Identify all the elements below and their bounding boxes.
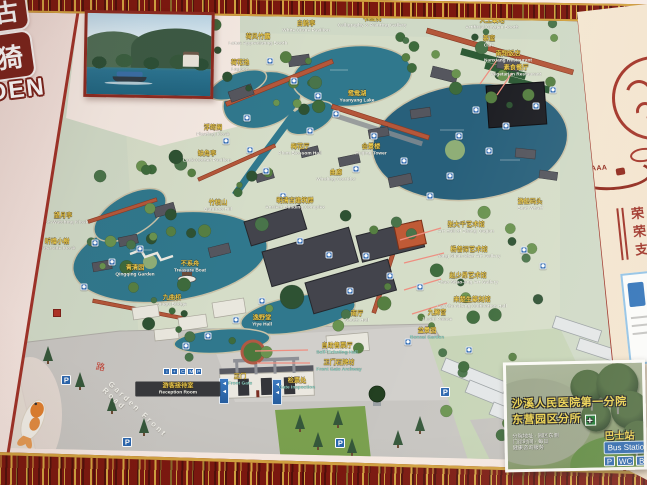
tree: [377, 296, 391, 310]
tree: [128, 282, 138, 292]
restaurant-building: [486, 82, 547, 128]
tree: [288, 78, 298, 88]
tree: [460, 292, 471, 303]
tree: [293, 99, 302, 108]
tree: [402, 53, 410, 61]
tree: [369, 226, 378, 235]
vertical-char: 支: [634, 238, 647, 258]
tree: [471, 34, 478, 41]
tree: [126, 240, 135, 249]
logo-seal-top: 古: [0, 0, 29, 33]
tree: [188, 169, 196, 177]
photo-pavilion: [183, 55, 199, 67]
tree: [527, 243, 538, 254]
tree: [305, 58, 312, 65]
tree: [169, 150, 183, 164]
tree: [483, 29, 489, 35]
notice-box: [620, 270, 647, 365]
tree: [145, 203, 156, 214]
tree: [255, 217, 269, 231]
tree: [94, 170, 106, 182]
tree: [246, 85, 252, 91]
tree: [99, 263, 105, 269]
bus-icon: B: [636, 455, 647, 465]
tree: [177, 278, 190, 291]
tree: [166, 227, 176, 237]
tree: [273, 100, 280, 107]
tree: [384, 283, 391, 290]
tree: [263, 168, 273, 178]
inset-title-line1: 沙溪人民医院第一分院: [512, 393, 627, 411]
tree: [550, 34, 558, 42]
tree: [409, 41, 419, 51]
tree: [141, 165, 151, 175]
bus-station-inset: 沙溪人民医院第一分院 东营园区分所 + 分院地址 · 园区东侧 门诊时间 · 每…: [503, 360, 647, 473]
tree: [186, 228, 196, 238]
garden-logo-text: GARDEN: [0, 73, 47, 115]
tree: [309, 76, 322, 89]
tree: [449, 82, 462, 95]
tree: [440, 405, 452, 417]
tree: [467, 311, 480, 324]
tree: [407, 63, 417, 73]
tree: [341, 310, 351, 320]
tree: [233, 188, 242, 197]
tree: [185, 353, 194, 362]
tree: [508, 353, 516, 361]
tree: [280, 51, 292, 63]
tree: [198, 225, 211, 238]
tree: [181, 310, 188, 317]
tree: [165, 209, 176, 220]
tree: [403, 37, 410, 44]
tree: [431, 50, 439, 58]
tree: [333, 320, 344, 331]
inset-info-text: 分院地址 · 园区东侧 门诊时间 · 每日 健康咨询服务: [512, 432, 559, 450]
tree: [418, 314, 425, 321]
logo-seal-bottom: 猗: [0, 31, 35, 81]
tree: [458, 361, 469, 372]
tree: [391, 217, 402, 228]
tree: [485, 91, 497, 103]
tree: [214, 47, 221, 54]
tree: [489, 308, 502, 321]
parking-icon: P: [604, 456, 615, 466]
tree: [506, 102, 513, 109]
photographed-map-sign: 荷风竹露Lotus Appreciating Booth白鹤亭White Cra…: [0, 0, 647, 485]
tree: [151, 297, 157, 303]
tree: [428, 322, 435, 329]
tree: [545, 77, 555, 87]
tree: [312, 100, 325, 113]
tree: [149, 233, 157, 241]
vertical-rule: [616, 208, 628, 260]
tree: [142, 317, 155, 330]
tree: [237, 182, 243, 188]
bus-station-label: Bus Station: [604, 440, 647, 454]
tree: [260, 346, 272, 358]
tree: [222, 72, 232, 82]
tree: [353, 343, 364, 354]
tree: [169, 308, 176, 315]
inset-title-line2: 东营园区分所 +: [512, 410, 596, 428]
toilet-icon: WC: [617, 456, 635, 466]
tree: [522, 254, 531, 263]
tree: [87, 238, 96, 247]
tree: [340, 210, 351, 221]
tree: [105, 236, 116, 247]
tree: [475, 41, 488, 54]
tree: [438, 348, 447, 357]
tree: [265, 305, 273, 313]
tree: [533, 294, 543, 304]
tree: [246, 171, 257, 182]
tree: [522, 89, 534, 101]
tour-boat: [112, 71, 146, 84]
tree: [176, 326, 182, 332]
tree: [505, 223, 515, 233]
green-cross-icon: +: [585, 415, 596, 426]
tree: [457, 279, 464, 286]
scenic-inset-photo: [83, 10, 214, 99]
tree: [478, 206, 491, 219]
tree: [185, 331, 196, 342]
inset-facility-icons: P WC B: [604, 455, 647, 466]
tree: [452, 69, 461, 78]
tree: [508, 237, 516, 245]
tree: [430, 264, 443, 277]
tree: [120, 260, 134, 274]
tree: [497, 70, 508, 81]
tree: [229, 337, 236, 344]
